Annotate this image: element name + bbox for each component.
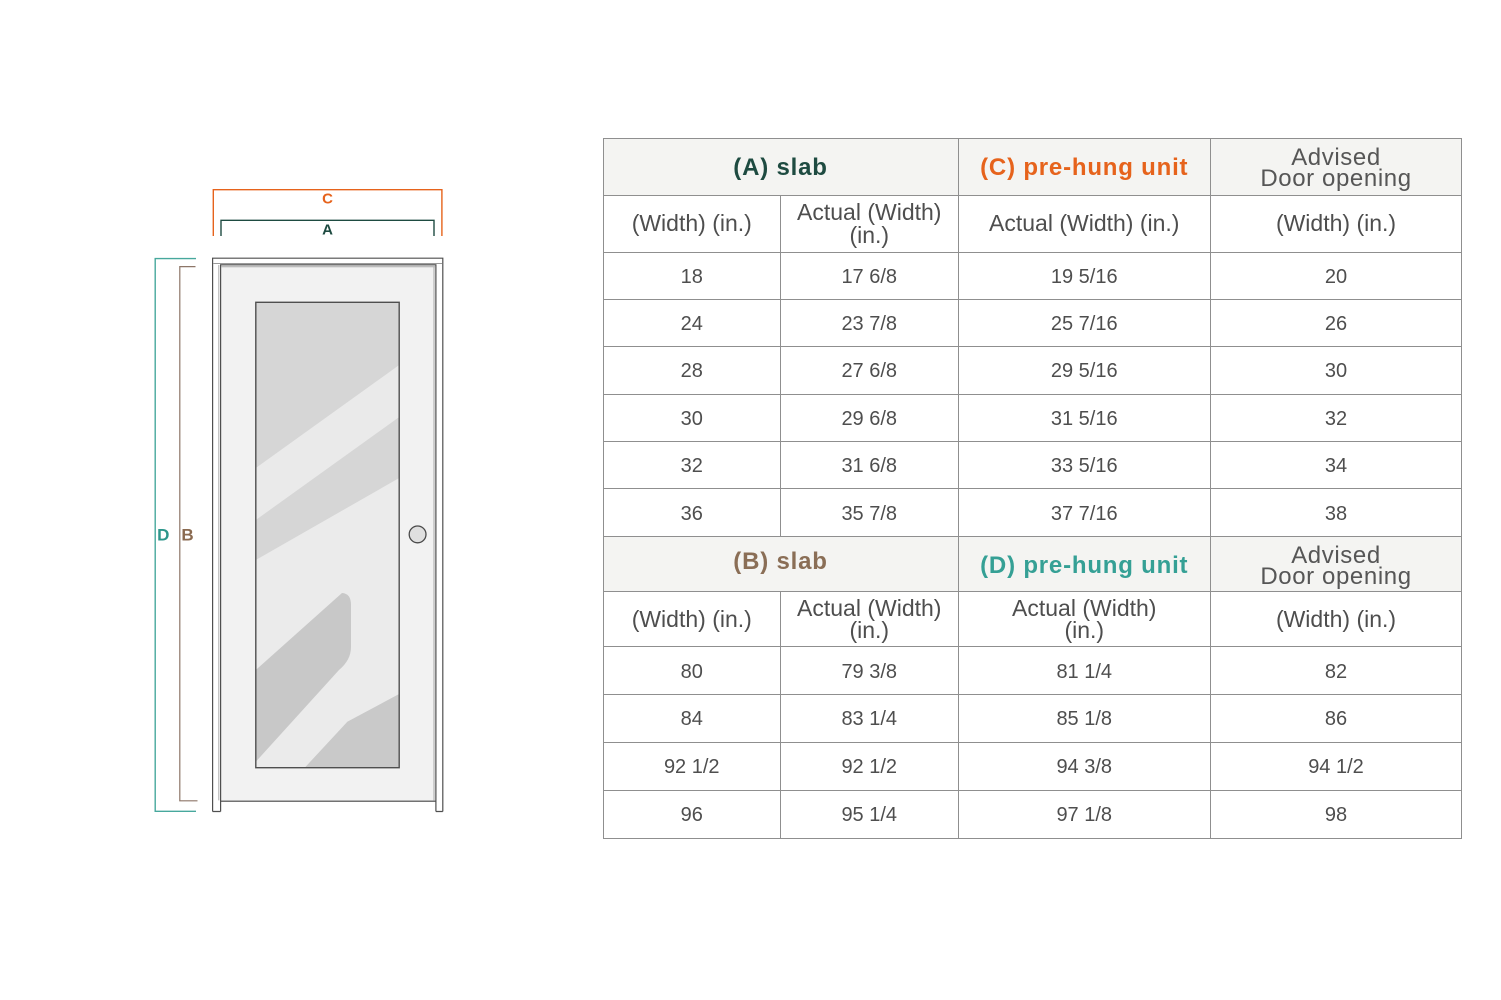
svg-text:D: D [157, 526, 169, 545]
svg-text:C: C [322, 191, 333, 208]
svg-text:B: B [181, 526, 193, 545]
svg-text:A: A [322, 222, 333, 239]
